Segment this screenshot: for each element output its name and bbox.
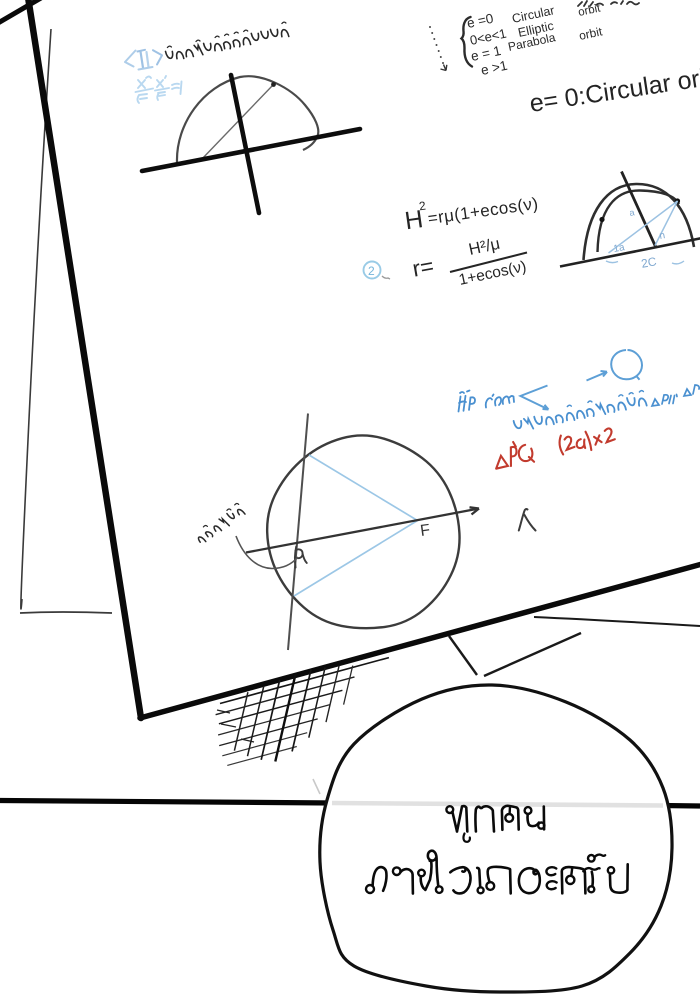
svg-text:2: 2 [368, 264, 375, 278]
svg-text:r=: r= [410, 252, 435, 281]
svg-text:2C: 2C [640, 254, 658, 271]
